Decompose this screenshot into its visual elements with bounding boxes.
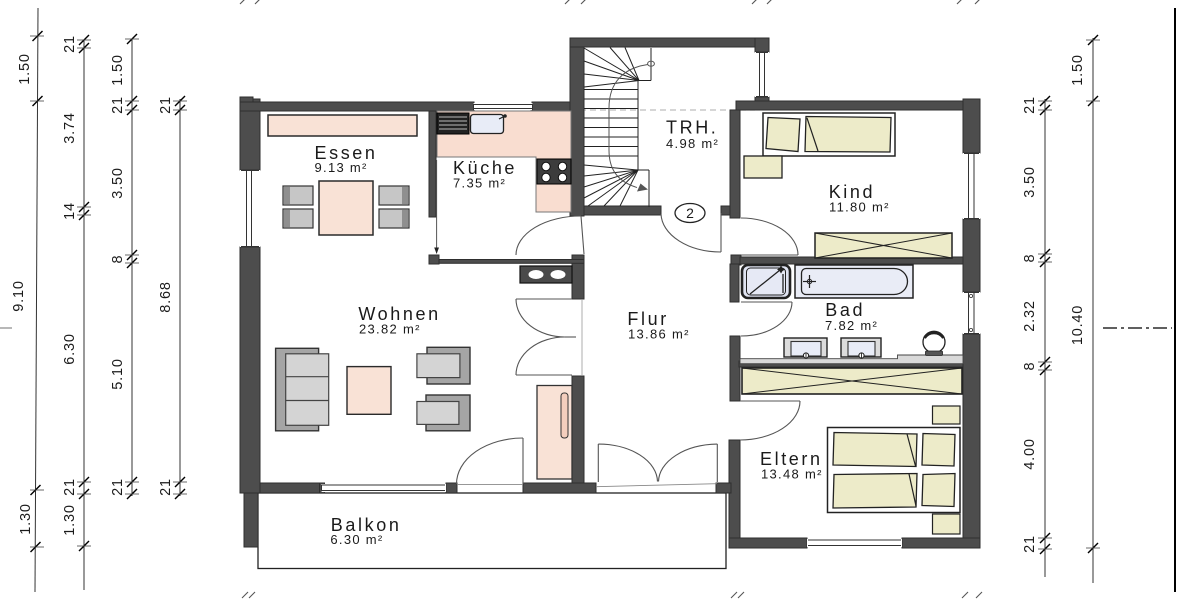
svg-text:2.32: 2.32 [1022,300,1038,331]
svg-text:7.82 m²: 7.82 m² [825,318,878,333]
svg-text:4.98 m²: 4.98 m² [666,136,719,151]
svg-text:21: 21 [1022,96,1038,114]
svg-text:3.50: 3.50 [110,167,126,198]
svg-text:5.10: 5.10 [110,358,126,389]
svg-text:9.13 m²: 9.13 m² [315,160,368,175]
svg-text:21: 21 [110,478,126,496]
svg-text:23.82 m²: 23.82 m² [359,322,421,337]
svg-text:9.10: 9.10 [11,280,27,311]
svg-text:10.40: 10.40 [1070,305,1086,345]
svg-text:21: 21 [1022,535,1038,553]
svg-text:13.48 m²: 13.48 m² [761,466,823,481]
svg-text:8.68: 8.68 [158,281,174,312]
svg-text:6.30 m²: 6.30 m² [330,532,383,547]
svg-text:8: 8 [1022,254,1038,263]
svg-text:21: 21 [62,35,78,53]
svg-text:8: 8 [1022,362,1038,371]
svg-text:4.00: 4.00 [1022,438,1038,469]
svg-text:21: 21 [110,96,126,114]
svg-text:1.30: 1.30 [18,503,34,534]
svg-text:21: 21 [62,478,78,496]
svg-text:21: 21 [158,478,174,496]
svg-text:14: 14 [62,202,78,220]
svg-text:6.30: 6.30 [62,333,78,364]
svg-text:1.50: 1.50 [1070,54,1086,85]
svg-text:1.30: 1.30 [62,504,78,535]
svg-text:3.50: 3.50 [1022,166,1038,197]
svg-text:7.35 m²: 7.35 m² [453,176,506,191]
svg-text:3.74: 3.74 [62,112,78,143]
svg-text:8: 8 [110,255,126,264]
svg-text:13.86 m²: 13.86 m² [628,327,690,342]
svg-text:1.50: 1.50 [17,53,33,84]
svg-text:11.80 m²: 11.80 m² [829,199,890,214]
svg-text:2: 2 [686,205,694,221]
svg-text:TRH.: TRH. [666,118,718,138]
svg-text:Bad: Bad [825,300,865,320]
svg-text:1.50: 1.50 [110,54,126,85]
svg-text:21: 21 [158,96,174,114]
